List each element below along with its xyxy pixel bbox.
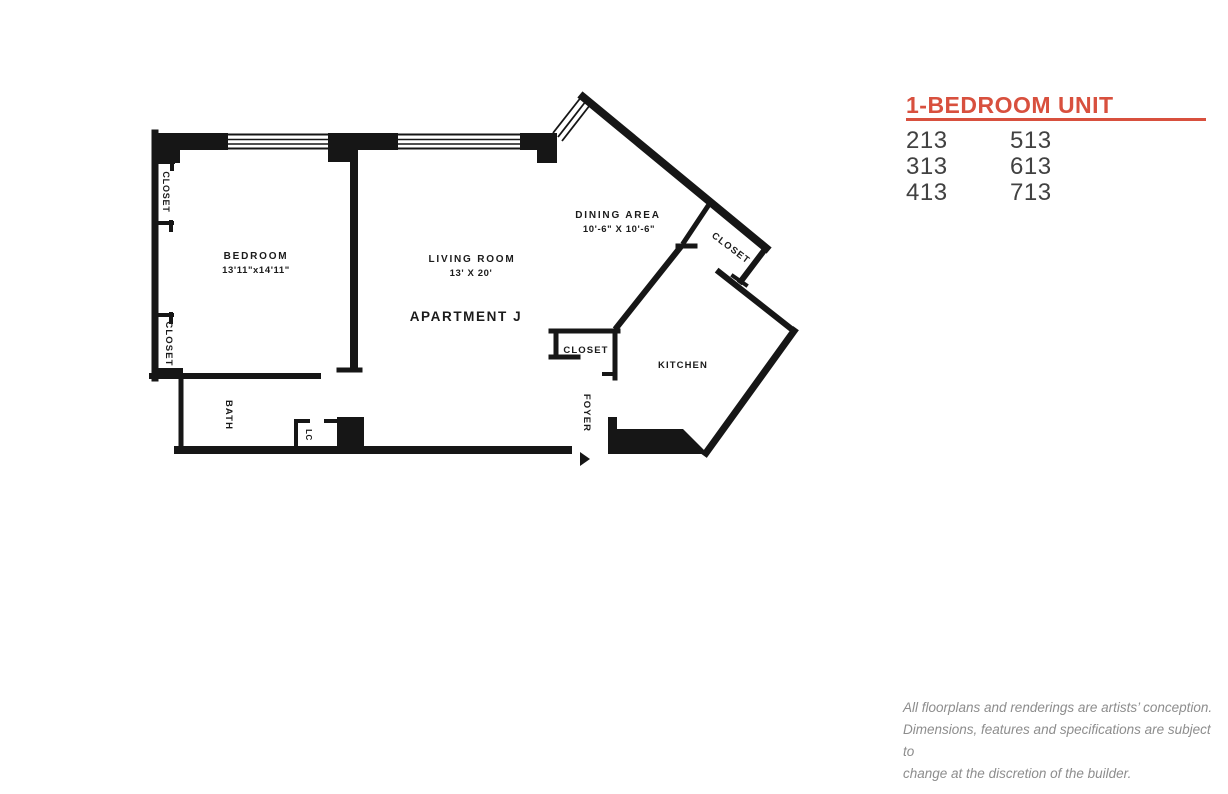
unit-number: 513 [1010, 127, 1052, 153]
label-foyer: FOYER [581, 394, 592, 432]
label-apartment: APARTMENT J [410, 309, 523, 324]
label-living-room: LIVING ROOM [428, 254, 515, 265]
label-dining-area: DINING AREA [575, 210, 661, 221]
interior-walls [152, 150, 708, 451]
label-closet-upper-left: CLOSET [161, 171, 171, 212]
disclaimer-line: change at the discretion of the builder. [903, 763, 1213, 785]
label-living-room-dims: 13' X 20' [450, 268, 493, 279]
disclaimer-line: All floorplans and renderings are artist… [903, 697, 1213, 719]
unit-number: 713 [1010, 179, 1052, 205]
title-underline [906, 118, 1206, 121]
label-bedroom: BEDROOM [224, 251, 289, 262]
entry-arrow-icon [580, 452, 590, 466]
label-bedroom-dims: 13'11"x14'11" [222, 265, 290, 276]
label-closet-lower-left: CLOSET [163, 321, 174, 366]
unit-number: 313 [906, 153, 1010, 179]
kitchen-counter [608, 417, 708, 454]
disclaimer-text: All floorplans and renderings are artist… [903, 697, 1213, 785]
label-lc: LC [304, 429, 313, 441]
disclaimer-line: Dimensions, features and specifications … [903, 719, 1213, 763]
unit-number: 413 [906, 179, 1010, 205]
unit-number: 613 [1010, 153, 1052, 179]
label-kitchen: KITCHEN [658, 360, 708, 371]
unit-number: 213 [906, 127, 1010, 153]
label-closet-foyer: CLOSET [563, 345, 608, 356]
unit-type-title: 1-BEDROOM UNIT [906, 92, 1114, 119]
label-dining-area-dims: 10'-6" X 10'-6" [583, 224, 655, 235]
label-bath: BATH [223, 400, 234, 430]
unit-number-list: 213 513 313 613 413 713 [906, 127, 1052, 205]
page-background: BEDROOM 13'11"x14'11" LIVING ROOM 13' X … [0, 0, 1228, 794]
